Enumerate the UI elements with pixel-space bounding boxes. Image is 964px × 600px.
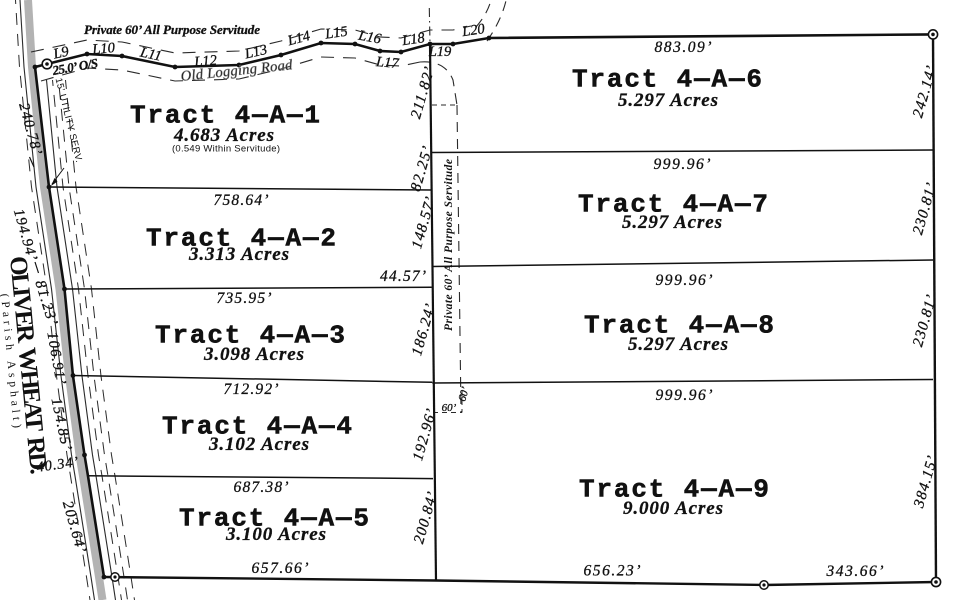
svg-text:(0.549 Within Servitude): (0.549 Within Servitude)	[172, 144, 280, 155]
svg-text:L10: L10	[91, 40, 117, 58]
svg-text:L11: L11	[138, 44, 163, 64]
svg-text:194.94’: 194.94’	[10, 207, 40, 262]
svg-text:3.313 Acres: 3.313 Acres	[188, 244, 289, 265]
svg-text:L17: L17	[374, 54, 400, 72]
svg-text:3.100 Acres: 3.100 Acres	[225, 524, 326, 545]
svg-text:3.102 Acres: 3.102 Acres	[208, 434, 309, 455]
svg-text:758.64’: 758.64’	[214, 192, 269, 209]
svg-text:5.297 Acres: 5.297 Acres	[618, 90, 718, 111]
svg-text:3.098 Acres: 3.098 Acres	[203, 344, 304, 365]
svg-text:883.09’: 883.09’	[655, 39, 712, 56]
svg-text:15’ UTILITY SERV.: 15’ UTILITY SERV.	[53, 77, 85, 164]
svg-text:5.297 Acres: 5.297 Acres	[628, 334, 728, 355]
svg-text:186.24’: 186.24’	[409, 302, 439, 357]
svg-text:712.92’: 712.92’	[224, 381, 279, 398]
svg-text:L20: L20	[460, 21, 486, 40]
svg-text:L15: L15	[323, 24, 349, 43]
svg-text:999.96’: 999.96’	[654, 156, 711, 173]
svg-text:999.96’: 999.96’	[656, 387, 713, 404]
svg-text:999.96’: 999.96’	[656, 272, 713, 289]
svg-text:9.000 Acres: 9.000 Acres	[623, 498, 723, 519]
svg-text:200.84’: 200.84’	[411, 490, 441, 545]
svg-text:148.57’: 148.57’	[409, 195, 439, 250]
svg-text:60’: 60’	[456, 385, 472, 403]
svg-text:687.38’: 687.38’	[234, 479, 289, 496]
svg-text:L19: L19	[428, 44, 452, 60]
svg-text:Private 60’ All Purpose Servit: Private 60’ All Purpose Servitude	[443, 159, 455, 331]
svg-text:735.95’: 735.95’	[217, 290, 272, 307]
svg-text:L12: L12	[193, 53, 218, 71]
svg-text:44.57’: 44.57’	[380, 268, 426, 285]
svg-text:60’: 60’	[442, 402, 457, 414]
svg-text:657.66’: 657.66’	[252, 560, 309, 577]
svg-text:L18: L18	[400, 30, 426, 49]
svg-text:5.297 Acres: 5.297 Acres	[622, 212, 722, 233]
svg-text:230.81’: 230.81’	[910, 181, 940, 236]
svg-text:343.66’: 343.66’	[826, 563, 884, 580]
svg-text:242.14’: 242.14’	[910, 64, 940, 119]
svg-text:Private 60’ All Purpose Servit: Private 60’ All Purpose Servitude	[84, 22, 260, 37]
svg-text:656.23’: 656.23’	[584, 563, 641, 580]
svg-text:211.82’: 211.82’	[408, 65, 438, 120]
